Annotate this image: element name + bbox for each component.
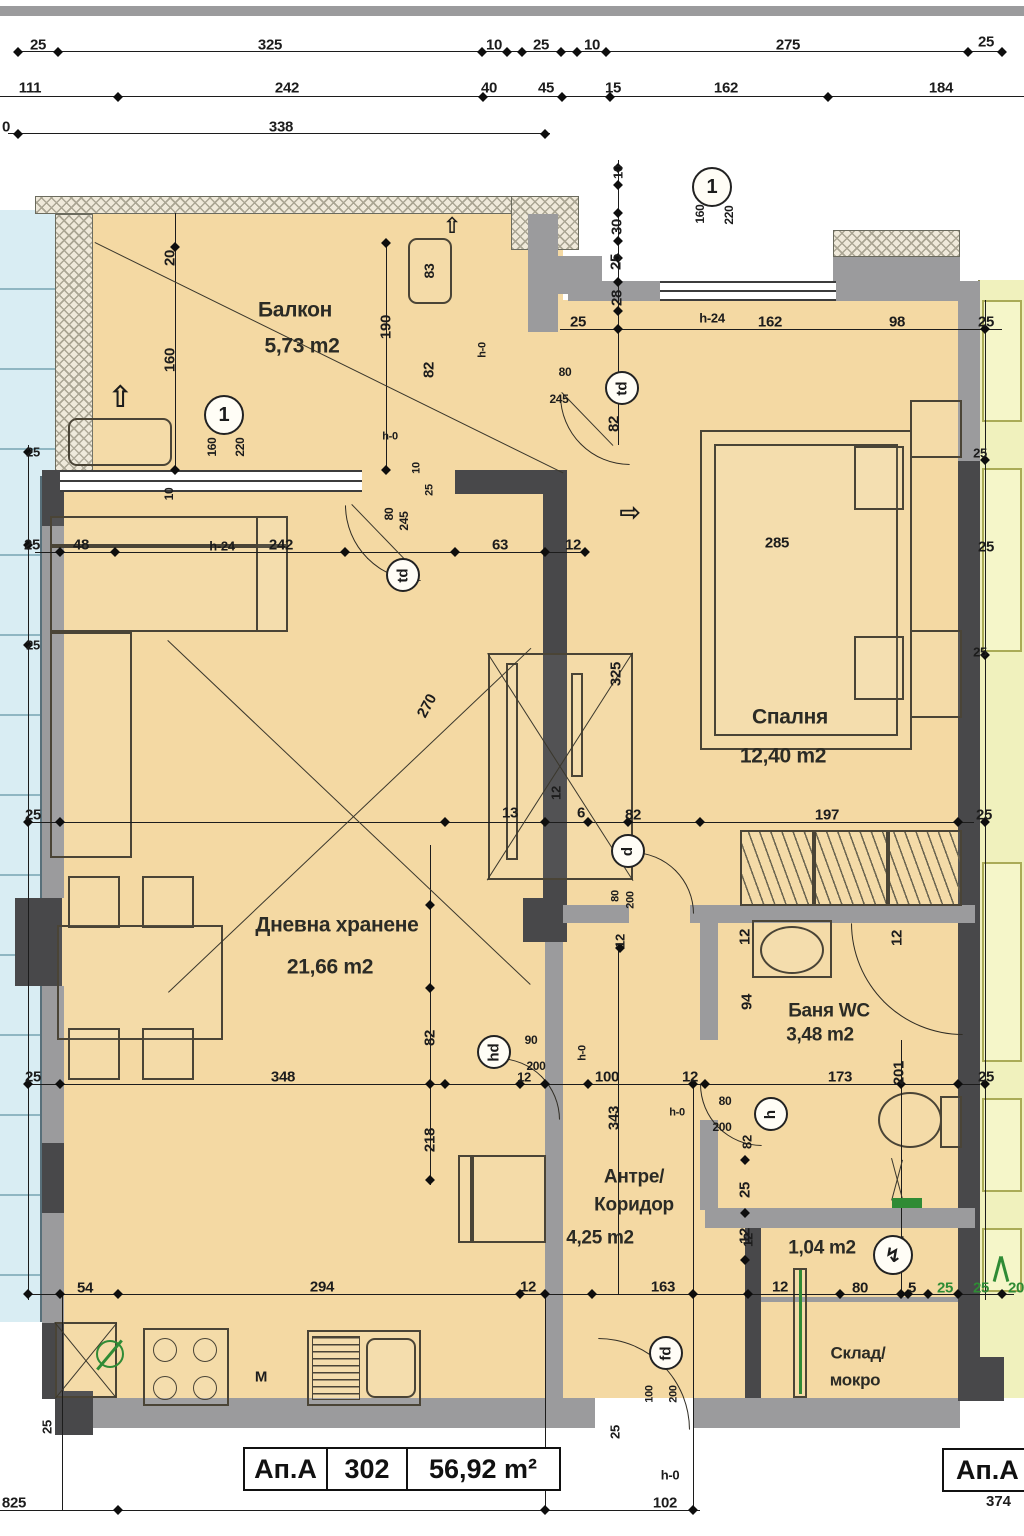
dim-label: 25 [973, 447, 987, 460]
dim-label: 160 [163, 348, 178, 372]
dim-label: 270 [415, 692, 440, 720]
dim-label: 220 [234, 437, 246, 456]
dim-label: 25 [738, 1182, 753, 1198]
dim-label: ⇨ [619, 499, 641, 525]
dim-label: 245 [398, 511, 410, 530]
dim-label: 200 [712, 1121, 731, 1133]
room-label: Спалня [752, 707, 828, 728]
dim-label: 294 [310, 1280, 334, 1295]
door-tag-d: d [611, 834, 645, 868]
dim-label: 12 [682, 1070, 698, 1085]
dim-label: 90 [525, 1034, 538, 1046]
dim-label: 197 [815, 808, 839, 823]
dim-label: 325 [609, 662, 624, 686]
dim-label: ⇧ [108, 383, 133, 413]
dim-label: 45 [538, 81, 554, 96]
dim-label: ⇧ [443, 215, 461, 237]
dim-label: 25 [25, 1070, 41, 1085]
dim-label: 20 [163, 250, 178, 266]
dim-label: 82 [741, 1135, 754, 1149]
room-label: Склад/ [831, 1345, 886, 1362]
dim-label: 80 [559, 366, 572, 378]
room-label: Баня WC [788, 1002, 870, 1021]
dim-label: 200 [669, 1385, 680, 1402]
dim-label: 10 [163, 488, 175, 501]
dim-label: 201 [892, 1061, 907, 1085]
room-label: 4,25 m2 [566, 1229, 634, 1248]
room-label: 3,48 m2 [786, 1026, 854, 1045]
dim-label: 190 [379, 315, 394, 339]
dim-label: 12 [550, 786, 563, 800]
dim-label: 80 [611, 890, 622, 902]
dim-label: 25 [978, 315, 994, 330]
door-tag-td: td [386, 558, 420, 592]
dim-label: 25 [973, 646, 987, 659]
dim-label: 5 [908, 1281, 916, 1296]
dim-label: 325 [258, 38, 282, 53]
dim-label: 80 [852, 1281, 868, 1296]
door-tag-hd: hd [477, 1035, 511, 1069]
dim-label: h-0 [669, 1108, 685, 1119]
door-tag-fd: fd [649, 1336, 683, 1370]
dim-label: 80 [719, 1095, 732, 1107]
title-block: Ап.А 302 56,92 m² [245, 1447, 561, 1491]
dim-label: 12 [520, 1280, 536, 1295]
room-label: Балкон [258, 300, 332, 321]
dim-label: 160 [694, 204, 706, 223]
dim-label: 25 [609, 254, 624, 270]
dim-label: 162 [758, 315, 782, 330]
dim-label: 12 [742, 1233, 755, 1247]
door-tag-↯: ↯ [873, 1235, 913, 1275]
dim-label: 82 [625, 808, 641, 823]
dim-label: 25 [976, 808, 992, 823]
dim-label: 25 [24, 538, 40, 553]
dim-label: 100 [645, 1385, 656, 1402]
dim-label: 25 [25, 808, 41, 823]
dim-label: 0 [2, 120, 10, 135]
dim-label: 12 [738, 929, 753, 945]
dim-label: 25 [26, 639, 40, 652]
room-label: 12,40 m2 [740, 746, 826, 767]
dim-label: 10 [612, 165, 625, 179]
dim-label: 20 [1008, 1281, 1024, 1296]
dim-label: 12 [517, 1071, 531, 1084]
dim-label: 12 [890, 930, 905, 946]
dim-label: 25 [425, 484, 436, 496]
dim-label: 25 [30, 38, 46, 53]
dim-label: 25 [978, 1070, 994, 1085]
dim-label: 25 [973, 1281, 989, 1296]
dim-label: 200 [626, 891, 637, 908]
door-tag-h: h [754, 1097, 788, 1131]
room-label: 1,04 m2 [788, 1239, 856, 1258]
dim-label: 13 [502, 806, 518, 821]
dimension-labels-layer: 25325102510275251112424045151621840338Ба… [0, 0, 1024, 1536]
dim-label: 218 [423, 1128, 438, 1152]
dim-label: 242 [275, 81, 299, 96]
dim-label: 285 [765, 536, 789, 551]
dim-label: 25 [609, 1425, 622, 1439]
dim-label: 25 [533, 38, 549, 53]
dim-label: 25 [937, 1281, 953, 1296]
dim-label: 173 [828, 1070, 852, 1085]
room-label: 5,73 m2 [265, 336, 340, 357]
dim-label: 10 [584, 38, 600, 53]
dim-label: 160 [206, 437, 218, 456]
room-label: 21,66 m2 [287, 957, 373, 978]
dim-label: 25 [570, 315, 586, 330]
dim-label: 184 [929, 81, 953, 96]
dim-label: 83 [422, 264, 436, 279]
dim-label: 338 [269, 120, 293, 135]
adjacent-unit-label: Ап.А [942, 1448, 1024, 1492]
dim-label: 100 [595, 1070, 619, 1085]
door-tag-td: td [605, 371, 639, 405]
door-tag-1: 1 [692, 167, 732, 207]
dim-label: h-0 [382, 432, 398, 443]
dim-label: 343 [607, 1106, 622, 1130]
dim-label: 825 [2, 1496, 26, 1511]
title-area: 56,92 m² [406, 1447, 561, 1491]
dim-label: 15 [605, 81, 621, 96]
dim-label: 102 [653, 1496, 677, 1511]
dim-label: h-0 [478, 342, 489, 358]
dim-label: 40 [481, 81, 497, 96]
dim-label: 82 [422, 362, 437, 378]
title-number: 302 [326, 1447, 408, 1491]
dim-label: 12 [565, 538, 581, 553]
dim-label: 348 [271, 1070, 295, 1085]
dim-label: 25 [26, 446, 40, 459]
dim-label: 6 [577, 806, 585, 821]
dim-label: h-24 [699, 312, 725, 325]
dim-label: 82 [423, 1030, 438, 1046]
room-label: мокро [830, 1372, 881, 1389]
dim-label: 82 [607, 416, 622, 432]
dim-label: h-0 [578, 1045, 589, 1061]
dim-label: h-24 [209, 540, 235, 553]
dim-label: 28 [610, 290, 625, 306]
room-label: Коридор [594, 1196, 674, 1215]
dim-label: 220 [723, 205, 735, 224]
room-label: Антре/ [604, 1168, 664, 1187]
dim-label: 245 [549, 393, 568, 405]
dim-label: 48 [73, 538, 89, 553]
dim-label: 10 [486, 38, 502, 53]
dim-label: 12 [772, 1280, 788, 1295]
dim-label: 162 [714, 81, 738, 96]
dim-label: 63 [492, 538, 508, 553]
dim-label: М [255, 1370, 267, 1385]
dim-label: 10 [412, 462, 423, 474]
dim-label: 98 [889, 315, 905, 330]
room-label: Дневна хранене [255, 915, 418, 936]
dim-label: 163 [651, 1280, 675, 1295]
dim-label: 25 [41, 1420, 54, 1434]
dim-label: 80 [383, 508, 395, 521]
door-tag-1: 1 [204, 395, 244, 435]
dim-label: 30 [610, 219, 625, 235]
dim-label: h-0 [661, 1469, 680, 1482]
dim-label: 94 [740, 994, 755, 1010]
title-unit: Ап.А [243, 1447, 329, 1491]
adjacent-unit-dim: 374 [986, 1493, 1011, 1510]
dim-label: 111 [19, 81, 41, 96]
dim-label: 242 [269, 538, 293, 553]
dim-label: 12 [614, 934, 627, 948]
dim-label: 25 [978, 35, 994, 50]
dim-label: 275 [776, 38, 800, 53]
dim-label: 54 [77, 1281, 93, 1296]
floor-plan: 25325102510275251112424045151621840338Ба… [0, 0, 1024, 1536]
dim-label: 25 [978, 540, 994, 555]
